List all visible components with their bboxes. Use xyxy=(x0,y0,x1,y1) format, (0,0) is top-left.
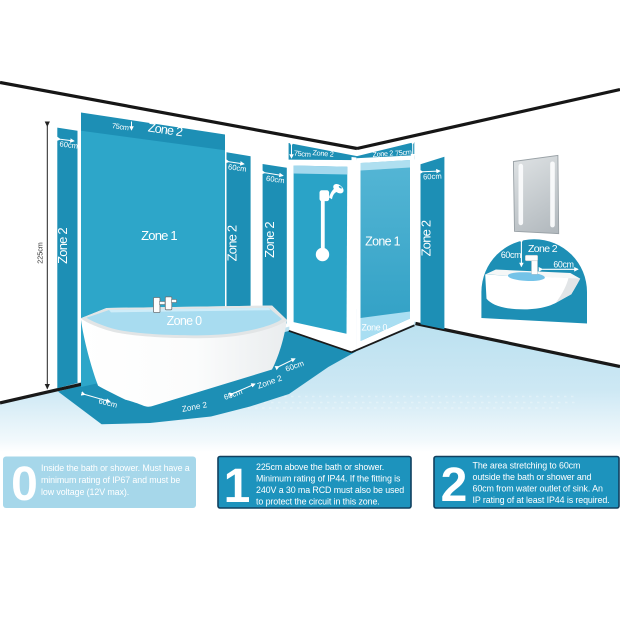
svg-text:Minimum rating of IP44. If the: Minimum rating of IP44. If the fitting i… xyxy=(256,474,401,484)
svg-text:60cm: 60cm xyxy=(501,250,521,260)
svg-text:60cm from water outlet of sink: 60cm from water outlet of sink. An xyxy=(473,484,603,494)
svg-text:Zone 0: Zone 0 xyxy=(167,314,202,328)
svg-text:outside the bath or shower and: outside the bath or shower and xyxy=(473,472,592,482)
svg-text:Zone 2: Zone 2 xyxy=(262,222,277,258)
svg-text:Inside the bath or shower. Mus: Inside the bath or shower. Must have a xyxy=(41,463,190,473)
svg-text:minimum rating of IP67 and mus: minimum rating of IP67 and must be xyxy=(41,475,180,485)
svg-text:2: 2 xyxy=(441,459,468,512)
svg-text:60cm: 60cm xyxy=(553,259,573,269)
svg-text:Zone 2: Zone 2 xyxy=(419,220,434,256)
svg-text:Zone 0: Zone 0 xyxy=(362,322,388,332)
svg-text:Zone 1: Zone 1 xyxy=(141,228,177,243)
svg-text:The area stretching to 60cm: The area stretching to 60cm xyxy=(473,461,581,471)
svg-text:Zone 2: Zone 2 xyxy=(225,225,240,261)
svg-text:to protect the circuit in this: to protect the circuit in this zone. xyxy=(256,497,380,507)
svg-text:Zone 2: Zone 2 xyxy=(55,228,70,264)
svg-text:1: 1 xyxy=(224,460,251,513)
svg-text:225cm: 225cm xyxy=(35,242,44,264)
svg-text:IP rating of at least IP44 is: IP rating of at least IP44 is required. xyxy=(473,495,610,505)
svg-text:Zone 1: Zone 1 xyxy=(365,235,400,249)
svg-text:Zone 2: Zone 2 xyxy=(312,148,334,159)
svg-text:60cm: 60cm xyxy=(423,172,442,182)
svg-text:Zone 2: Zone 2 xyxy=(528,243,558,255)
svg-text:0: 0 xyxy=(11,458,38,511)
svg-text:225cm above the bath or shower: 225cm above the bath or shower. xyxy=(256,462,384,472)
svg-text:240V a 30 ma RCD must also be: 240V a 30 ma RCD must also be used xyxy=(256,485,404,495)
svg-text:low voltage (12V max).: low voltage (12V max). xyxy=(41,487,129,497)
svg-text:75cm: 75cm xyxy=(293,149,311,159)
